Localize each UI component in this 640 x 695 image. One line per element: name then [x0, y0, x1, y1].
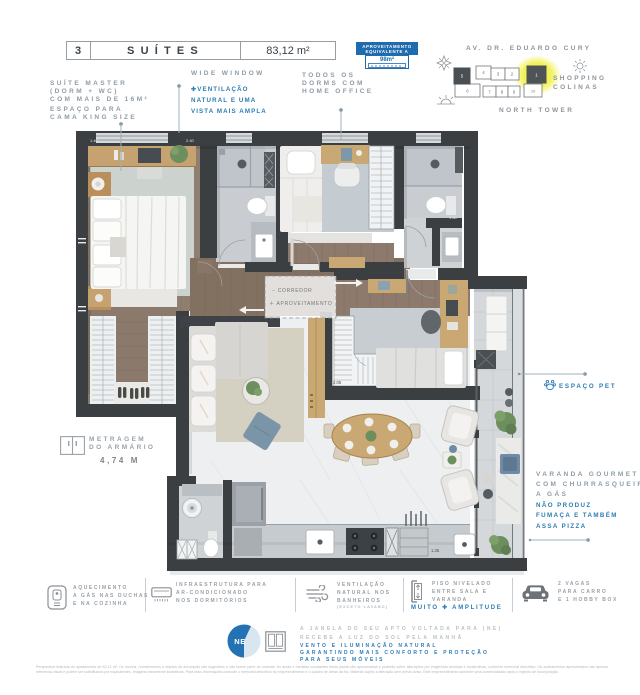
svg-text:2.05: 2.05 [333, 380, 342, 385]
svg-text:2.40: 2.40 [186, 138, 195, 143]
svg-text:1.80: 1.80 [449, 215, 458, 220]
svg-text:10: 10 [531, 90, 535, 94]
svg-text:＋ APROVEITAMENTO: ＋ APROVEITAMENTO [269, 301, 333, 307]
svg-text:− CORREDOR: − CORREDOR [272, 288, 312, 294]
svg-text:NE: NE [234, 637, 246, 646]
svg-text:1.40: 1.40 [90, 138, 99, 143]
svg-text:1.35: 1.35 [431, 548, 440, 553]
